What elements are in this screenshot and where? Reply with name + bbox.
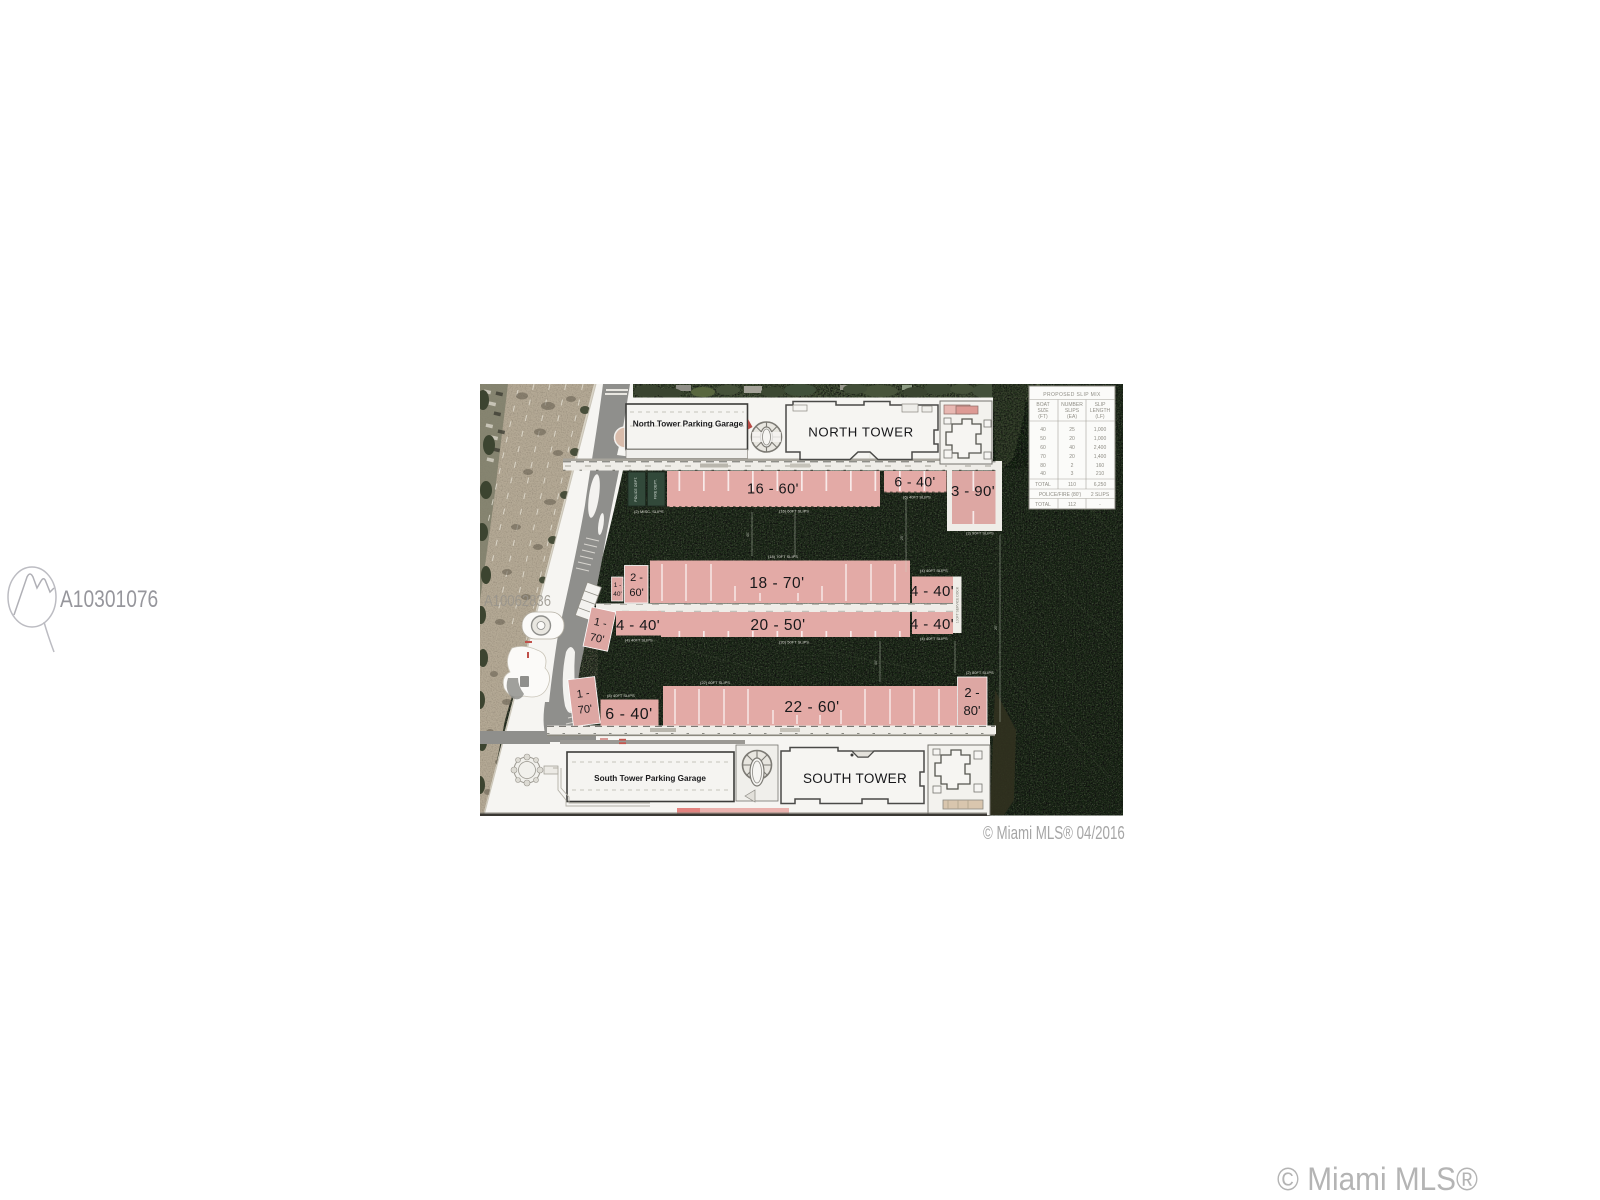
svg-text:4 - 40': 4 - 40': [910, 583, 954, 600]
svg-text:25: 25: [1069, 427, 1075, 433]
svg-text:40: 40: [1069, 445, 1075, 451]
svg-text:80: 80: [1040, 463, 1046, 469]
svg-text:70: 70: [1040, 454, 1046, 460]
svg-text:FIRE DEPT.: FIRE DEPT.: [654, 479, 658, 499]
svg-text:22 - 60': 22 - 60': [784, 699, 839, 716]
svg-text:100FT SERVICE DOCK: 100FT SERVICE DOCK: [956, 586, 960, 623]
svg-text:NORTH TOWER: NORTH TOWER: [808, 425, 914, 440]
svg-text:1 -: 1 -: [576, 687, 591, 701]
svg-text:2: 2: [1071, 463, 1074, 469]
svg-text:North Tower Parking Garage: North Tower Parking Garage: [633, 420, 744, 429]
svg-text:(FT): (FT): [1038, 414, 1048, 420]
svg-text:POLICE/FIRE (80'): POLICE/FIRE (80'): [1039, 492, 1082, 498]
svg-text:(3) 90FT SLIPS: (3) 90FT SLIPS: [966, 531, 994, 536]
svg-text:2,400: 2,400: [1094, 445, 1107, 451]
svg-text:160: 160: [1096, 463, 1105, 469]
svg-text:SOUTH TOWER: SOUTH TOWER: [803, 771, 907, 786]
svg-text:3: 3: [1071, 471, 1074, 477]
svg-text:6 - 40': 6 - 40': [894, 474, 935, 490]
svg-text:(18) 70FT SLIPS: (18) 70FT SLIPS: [768, 554, 798, 559]
svg-text:1,000: 1,000: [1094, 427, 1107, 433]
svg-text:20 - 50': 20 - 50': [750, 617, 805, 634]
svg-text:South Tower Parking Garage: South Tower Parking Garage: [594, 774, 706, 783]
svg-text:6,250: 6,250: [1094, 482, 1107, 488]
svg-text:(2) 80FT SLIPS: (2) 80FT SLIPS: [966, 670, 994, 675]
svg-text:(2) MISC. SLIPS: (2) MISC. SLIPS: [634, 509, 664, 514]
svg-text:2 SLIPS: 2 SLIPS: [1091, 492, 1110, 498]
svg-text:1,400: 1,400: [1094, 454, 1107, 460]
svg-text:(4) 40FT SLIPS: (4) 40FT SLIPS: [920, 636, 948, 641]
svg-text:TOTAL: TOTAL: [1035, 482, 1051, 488]
svg-text:20: 20: [1069, 436, 1075, 442]
svg-text:40: 40: [1040, 471, 1046, 477]
svg-text:40': 40': [746, 532, 750, 537]
svg-text:2 -: 2 -: [630, 572, 643, 584]
svg-text:(20) 50FT SLIPS: (20) 50FT SLIPS: [779, 640, 809, 645]
svg-text:6 - 40': 6 - 40': [605, 706, 652, 723]
svg-text:25': 25': [994, 625, 998, 630]
svg-text:50: 50: [1040, 436, 1046, 442]
svg-text:(4) 40FT SLIPS: (4) 40FT SLIPS: [625, 638, 653, 643]
svg-text:TOTAL: TOTAL: [1035, 502, 1051, 508]
svg-text:20: 20: [1069, 454, 1075, 460]
svg-text:4 - 40': 4 - 40': [910, 616, 954, 633]
svg-text:60': 60': [629, 587, 643, 599]
svg-text:3 - 90': 3 - 90': [951, 483, 995, 500]
svg-text:40: 40: [1040, 427, 1046, 433]
svg-text:(LF): (LF): [1095, 414, 1105, 420]
svg-text:40': 40': [613, 591, 621, 598]
svg-text:(8) 40FT SLIPS: (8) 40FT SLIPS: [607, 693, 635, 698]
svg-text:112: 112: [1068, 502, 1076, 508]
svg-text:16 - 60': 16 - 60': [747, 482, 799, 498]
svg-text:(6) 40FT SLIPS: (6) 40FT SLIPS: [903, 495, 931, 500]
svg-text:1 -: 1 -: [614, 582, 622, 589]
svg-text:80': 80': [964, 703, 981, 718]
svg-text:70': 70': [577, 703, 593, 717]
svg-text:110: 110: [1068, 482, 1076, 488]
svg-text:A10062836: A10062836: [484, 593, 551, 610]
svg-text:2 -: 2 -: [964, 685, 979, 700]
svg-text:(EA): (EA): [1067, 414, 1077, 420]
svg-text:POLICE DEPT.: POLICE DEPT.: [634, 476, 638, 501]
svg-text:210: 210: [1096, 471, 1105, 477]
svg-text:PROPOSED SLIP MIX: PROPOSED SLIP MIX: [1043, 392, 1101, 398]
svg-text:4 - 40': 4 - 40': [616, 617, 660, 634]
svg-text:60: 60: [1040, 445, 1046, 451]
svg-text:(4) 40FT SLIPS: (4) 40FT SLIPS: [920, 568, 948, 573]
svg-text:18 - 70': 18 - 70': [749, 575, 804, 592]
svg-text:25': 25': [900, 535, 904, 540]
svg-text:40': 40': [874, 660, 878, 665]
svg-text:(22) 60FT SLIPS: (22) 60FT SLIPS: [700, 680, 730, 685]
svg-text:(16) 60FT SLIPS: (16) 60FT SLIPS: [779, 509, 809, 514]
svg-text:1,000: 1,000: [1094, 436, 1107, 442]
